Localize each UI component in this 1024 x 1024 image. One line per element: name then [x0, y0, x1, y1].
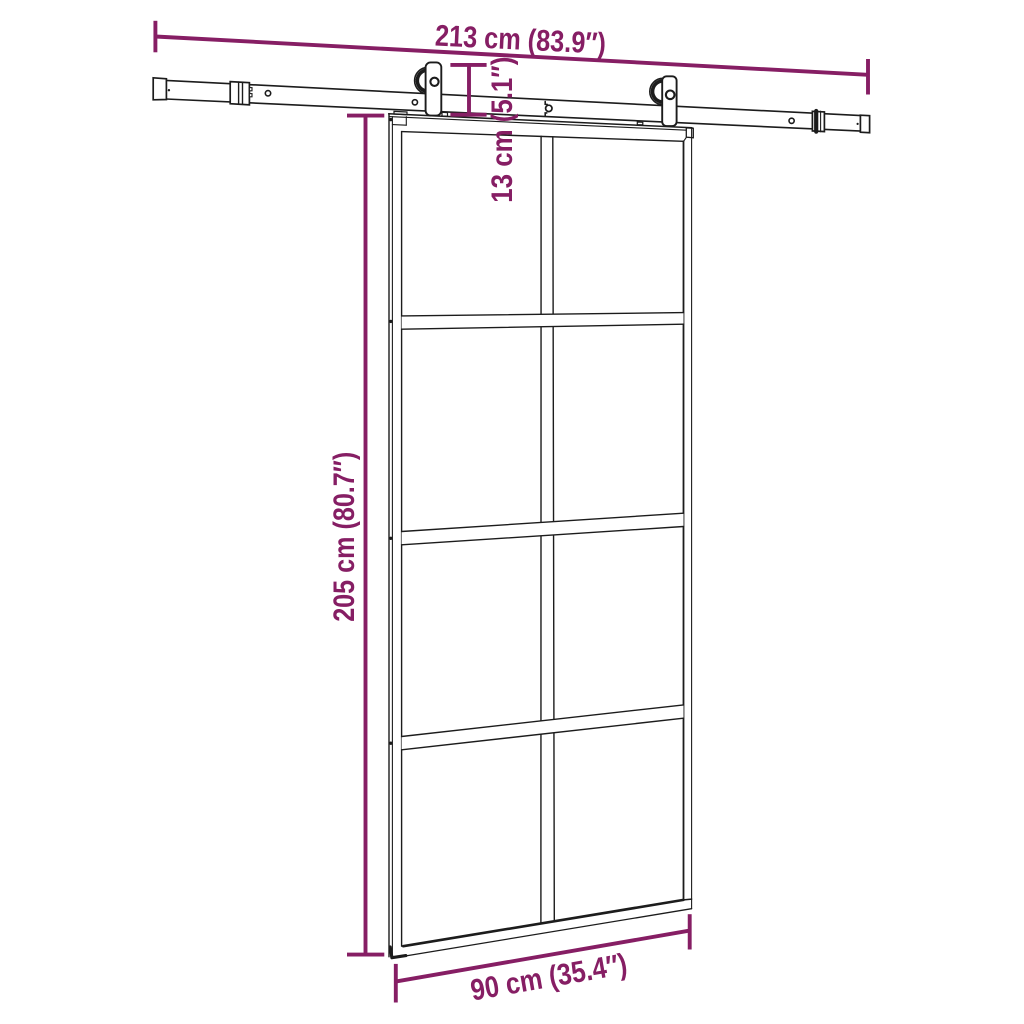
svg-text:13 cm (5.1″): 13 cm (5.1″) — [486, 57, 519, 203]
svg-text:205 cm (80.7″): 205 cm (80.7″) — [328, 452, 361, 622]
